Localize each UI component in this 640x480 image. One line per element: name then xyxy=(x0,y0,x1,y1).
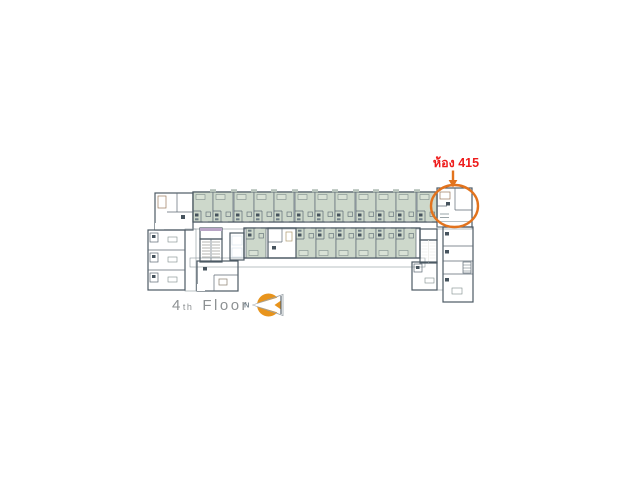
floor-label: 4thFloor xyxy=(172,297,249,314)
room-415-label: ห้อง 415 xyxy=(433,156,479,170)
footer: 4thFloor N xyxy=(172,294,283,317)
floor-plan-page: ห้อง 415 4thFloor N xyxy=(0,0,640,480)
top-room-row xyxy=(193,189,437,223)
corridor-right xyxy=(437,227,443,290)
tan-room xyxy=(268,228,296,258)
stairwell-right xyxy=(420,240,437,263)
room-below-stairs xyxy=(412,262,437,290)
brown-room xyxy=(197,261,238,291)
elevator-shaft xyxy=(230,233,244,260)
corridor-middle xyxy=(190,258,425,267)
north-label: N xyxy=(244,301,249,310)
corridor-left xyxy=(185,229,196,291)
right-wing xyxy=(412,227,473,302)
floor-plan-svg: ห้อง 415 4thFloor N xyxy=(0,0,640,480)
left-wing-bathrooms xyxy=(150,233,177,282)
right-wing-column xyxy=(443,227,473,302)
north-compass-icon xyxy=(253,294,283,317)
room-415-floor xyxy=(437,188,472,227)
middle-room-row xyxy=(244,227,420,258)
room-415 xyxy=(437,188,472,227)
purple-room xyxy=(200,228,222,239)
stairwell-left xyxy=(200,239,222,262)
corner-unit-top-left xyxy=(155,193,193,230)
core-facilities xyxy=(197,228,244,291)
floor-suffix: th xyxy=(183,302,194,312)
floor-number: 4 xyxy=(172,297,182,314)
left-wing xyxy=(148,229,196,291)
floor-word: Floor xyxy=(202,297,249,314)
floor-plan xyxy=(148,188,473,302)
